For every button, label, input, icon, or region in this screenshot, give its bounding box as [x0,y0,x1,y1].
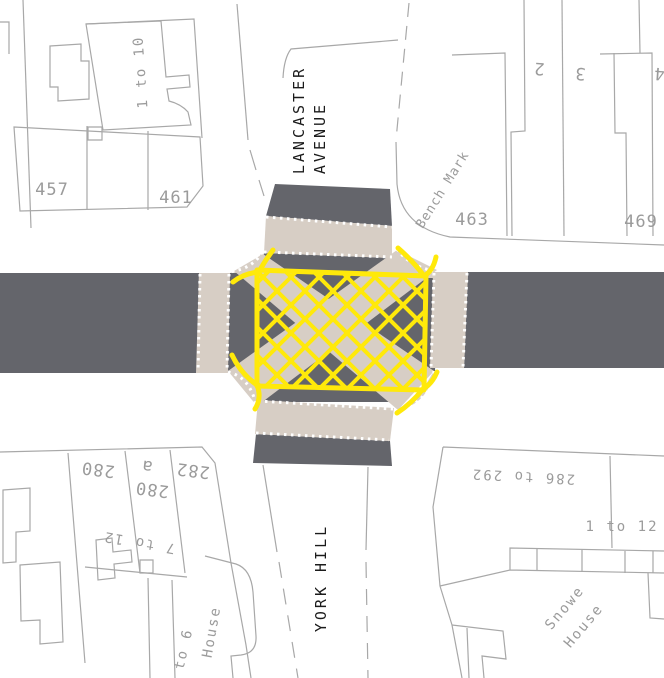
map-canvas: LANCASTER AVENUE YORK HILL 1 to 10 457 4… [0,0,664,678]
crossing-west [196,273,230,373]
crossing-east [430,272,468,368]
road-boundary-york-west [263,465,277,552]
road-boundary-york-east [366,467,368,550]
road-east-arm [464,272,664,368]
road-boundary-lancaster-west [237,4,248,140]
road-west-arm [0,273,199,373]
crossing-south [255,400,394,441]
road-boundary-lancaster-east [396,3,409,140]
map-drawing [0,0,664,678]
building-outline-tl [23,0,31,228]
